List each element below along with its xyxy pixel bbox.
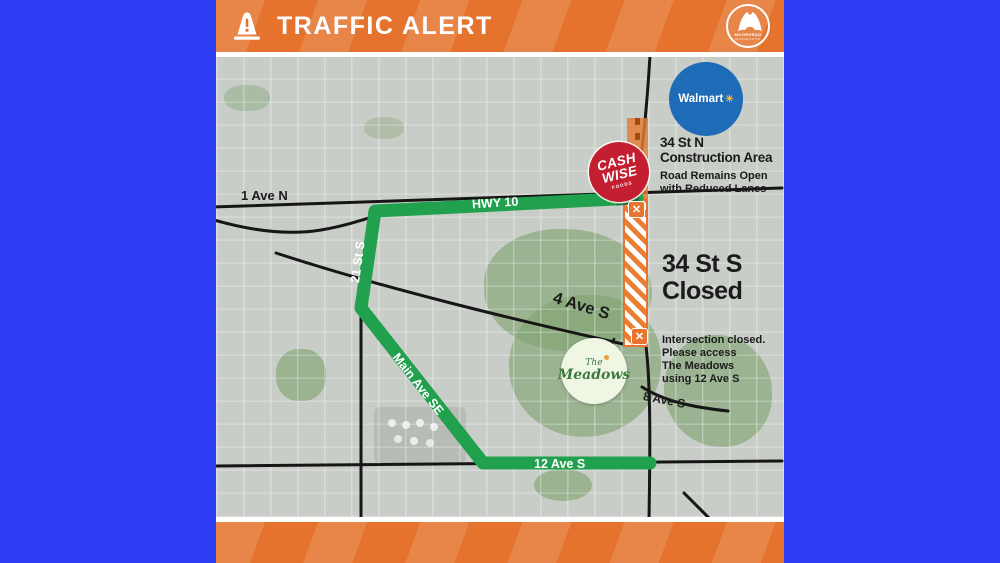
meadows-line2: Meadows <box>558 368 631 383</box>
closed-note-line2: Closed <box>662 278 742 305</box>
moorhead-city-logo: MOORHEAD MINNESOTA <box>726 4 770 48</box>
meadows-logo: The Meadows <box>561 338 627 404</box>
traffic-cone-icon <box>230 8 264 44</box>
city-logo-subtitle: MINNESOTA <box>735 37 760 41</box>
closed-intersection-marker-hwy10: ✕ <box>628 201 645 218</box>
construction-note-title1: 34 St N <box>660 135 772 150</box>
traffic-alert-graphic: TRAFFIC ALERT MOORHEAD MINNESOTA <box>216 0 784 563</box>
detour-map: ✕ ✕ 1 Ave N HWY 10 21 St S 4 Ave S Main … <box>216 57 784 517</box>
walmart-spark-icon: ✳ <box>725 94 733 105</box>
closed-intersection-marker-4aves: ✕ <box>631 328 648 345</box>
closed-note-line1: 34 St S <box>662 251 742 278</box>
construction-note-title2: Construction Area <box>660 150 772 165</box>
construction-note-sub1: Road Remains Open <box>660 170 772 183</box>
construction-note: 34 St N Construction Area Road Remains O… <box>660 135 772 195</box>
intersection-note: Intersection closed. Please access The M… <box>662 334 765 386</box>
road-label-12-ave-s: 12 Ave S <box>534 457 585 471</box>
intersection-note-line1: Intersection closed. <box>662 334 765 347</box>
detour-route <box>361 198 650 463</box>
arch-icon <box>735 10 765 32</box>
footer-bar <box>216 522 784 563</box>
intersection-note-line2: Please access <box>662 347 765 360</box>
page-title: TRAFFIC ALERT <box>277 12 493 41</box>
road-label-hwy-10: HWY 10 <box>472 195 519 212</box>
intersection-note-line3: The Meadows <box>662 360 765 373</box>
walmart-wordmark: Walmart <box>678 93 723 105</box>
intersection-note-line4: using 12 Ave S <box>662 373 765 386</box>
walmart-logo: Walmart ✳ <box>669 62 743 136</box>
construction-note-sub2: with Reduced Lanes <box>660 183 772 196</box>
road-label-1-ave-n: 1 Ave N <box>241 188 288 203</box>
header-bar: TRAFFIC ALERT MOORHEAD MINNESOTA <box>216 0 784 52</box>
meadows-flower-icon <box>604 355 609 360</box>
closed-note: 34 St S Closed <box>662 251 742 305</box>
